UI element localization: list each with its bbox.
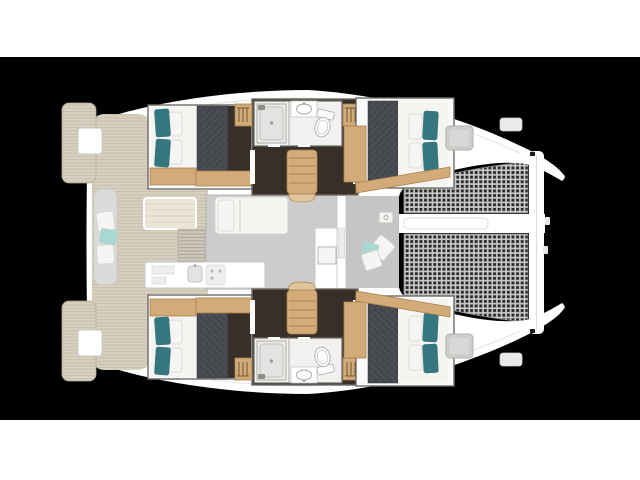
transom-step xyxy=(78,128,102,154)
island-hatch xyxy=(318,247,336,264)
center-walkway-beam xyxy=(398,214,545,233)
galley-item-1 xyxy=(152,266,174,274)
catamaran-deck-plan xyxy=(0,0,640,480)
fwd-bed-pillow-teal-2 xyxy=(422,142,438,172)
fwd-bed-pillow-white-2 xyxy=(409,143,422,168)
cockpit-cushion-aqua xyxy=(99,228,118,246)
bathroom-door-2 xyxy=(298,145,310,148)
lounge-pillow xyxy=(218,200,234,231)
foredeck-floor xyxy=(346,196,399,288)
shower-drain xyxy=(270,121,273,124)
fwd-bed-duvet xyxy=(368,101,398,186)
fwd-cabin-cabinet xyxy=(344,126,366,182)
aft-bed-pillow-teal-1 xyxy=(154,108,171,137)
galley xyxy=(145,262,265,288)
crossbeam-notch-bottom xyxy=(530,329,535,333)
shower-head xyxy=(258,105,265,110)
galley-faucet xyxy=(194,264,196,266)
foredeck-door xyxy=(339,228,345,258)
bathroom-door-1 xyxy=(268,145,280,148)
fwd-bed-pillow-teal-1 xyxy=(422,111,438,141)
crossbeam-notch-top xyxy=(530,152,535,156)
cockpit-table xyxy=(144,198,196,229)
galley-sink xyxy=(188,266,202,282)
steps-landing xyxy=(289,194,315,202)
sink-basin xyxy=(297,104,312,114)
aft-cabin-shelf-1 xyxy=(150,168,196,185)
cockpit-slat-bench xyxy=(178,229,205,262)
fwd-bed-pillow-white-1 xyxy=(409,114,422,139)
bathroom xyxy=(254,101,342,147)
cabin-door-aft xyxy=(250,150,255,184)
aft-cabin-shelf-2 xyxy=(196,171,252,186)
galley-item-2 xyxy=(152,277,166,284)
companionway-steps xyxy=(287,150,317,202)
boat-plan-image xyxy=(0,0,640,480)
deck-hatch-small xyxy=(500,118,522,131)
cockpit-cushion-white-2 xyxy=(96,244,114,264)
foredeck-lounge xyxy=(337,194,399,290)
bow-fitting-upper xyxy=(545,217,550,225)
galley-stove xyxy=(206,265,225,285)
aft-bed-pillow-teal-2 xyxy=(154,139,171,168)
windlass-box xyxy=(379,212,393,223)
sink-faucet xyxy=(303,102,306,105)
forward-cabin xyxy=(344,98,454,193)
bow-fitting-lower xyxy=(543,246,548,254)
wardrobe-aft xyxy=(235,104,252,126)
aft-bed-duvet xyxy=(197,106,228,172)
